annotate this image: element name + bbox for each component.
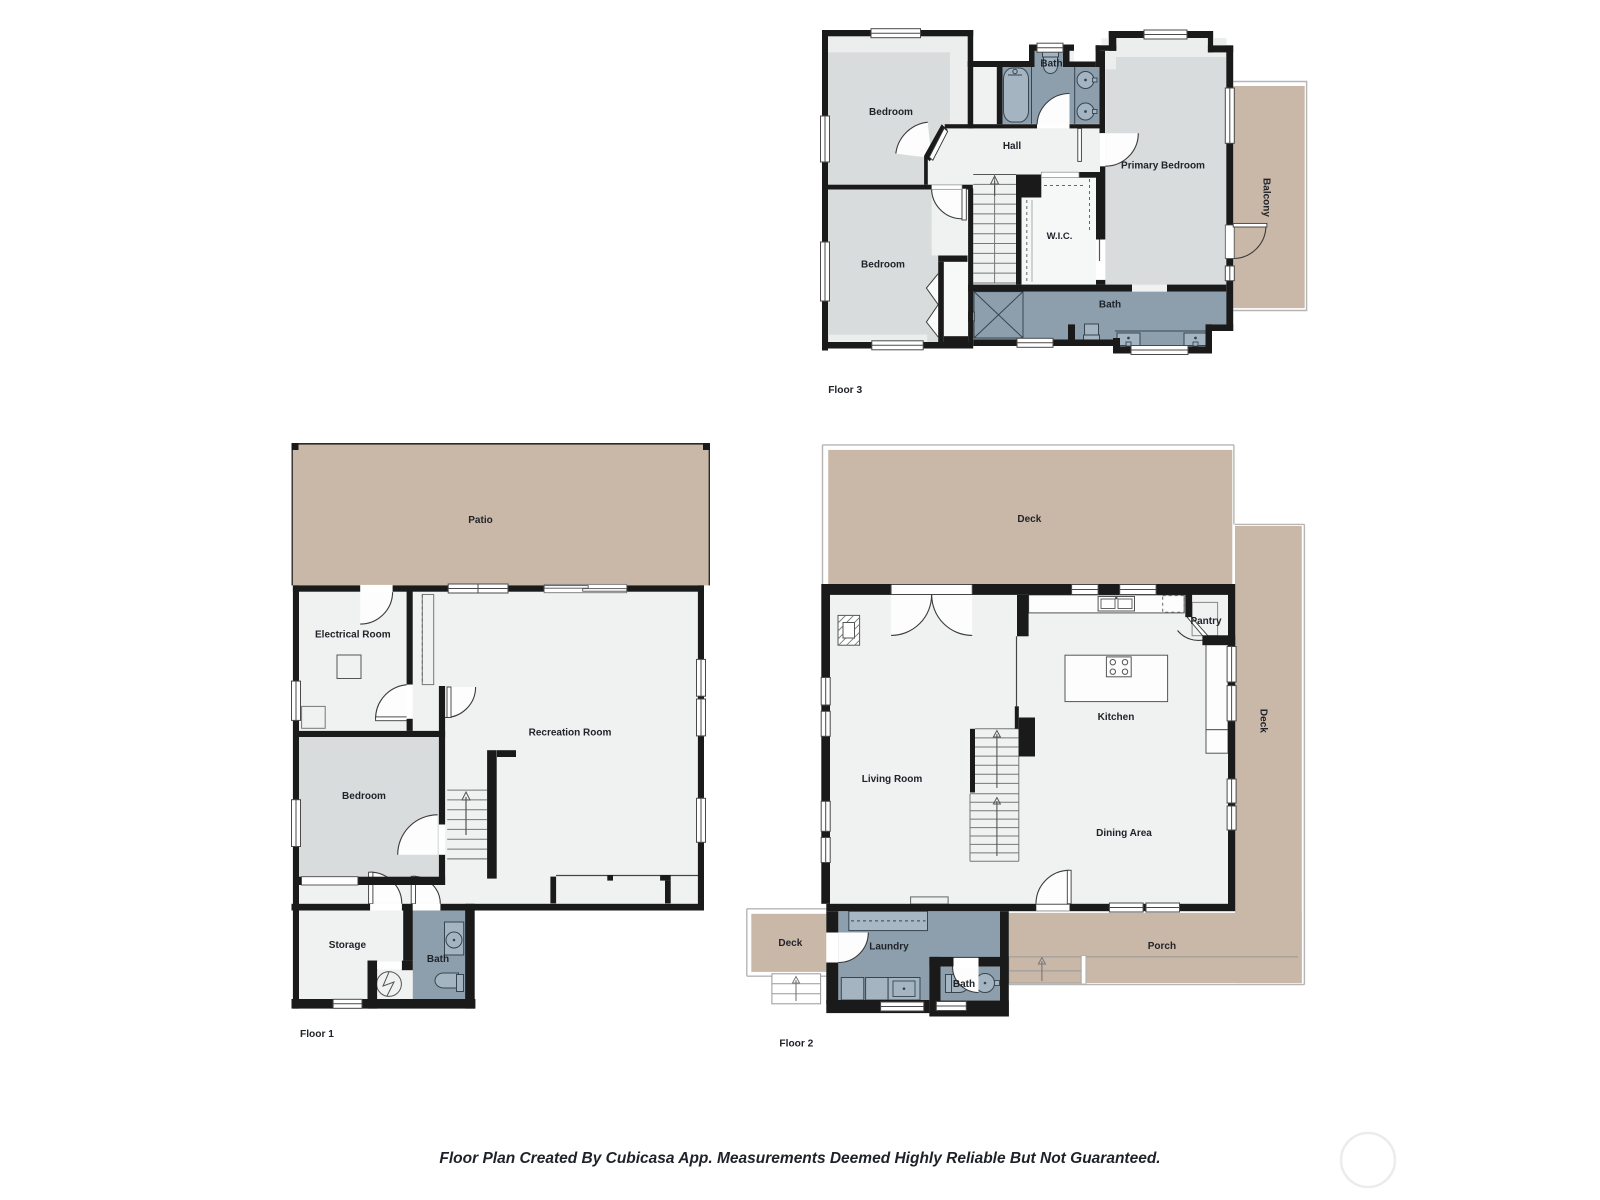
svg-text:Porch: Porch (1148, 941, 1176, 952)
svg-text:Floor 1: Floor 1 (300, 1029, 334, 1040)
svg-text:Bath: Bath (427, 954, 449, 965)
svg-text:Dining Area: Dining Area (1096, 828, 1152, 839)
svg-text:Primary Bedroom: Primary Bedroom (1121, 161, 1205, 172)
svg-text:Floor Plan Created By Cubicasa: Floor Plan Created By Cubicasa App. Meas… (439, 1150, 1160, 1167)
svg-text:Laundry: Laundry (869, 942, 909, 953)
svg-text:Bedroom: Bedroom (869, 107, 913, 118)
svg-text:Floor 3: Floor 3 (828, 385, 862, 396)
svg-text:Pantry: Pantry (1190, 616, 1222, 627)
svg-text:Recreation Room: Recreation Room (529, 728, 612, 739)
svg-text:Balcony: Balcony (1261, 178, 1272, 217)
svg-text:Patio: Patio (468, 515, 492, 526)
svg-text:Deck: Deck (1258, 709, 1269, 733)
svg-text:Bath: Bath (1099, 300, 1121, 311)
svg-text:Hall: Hall (1003, 141, 1022, 152)
svg-text:W.I.C.: W.I.C. (1047, 231, 1073, 242)
svg-text:Bedroom: Bedroom (861, 260, 905, 271)
svg-text:Bedroom: Bedroom (342, 791, 386, 802)
svg-text:Deck: Deck (1017, 514, 1041, 525)
svg-text:Electrical Room: Electrical Room (315, 630, 391, 641)
svg-text:Living Room: Living Room (862, 774, 923, 785)
svg-text:Storage: Storage (329, 940, 367, 951)
svg-text:Kitchen: Kitchen (1098, 712, 1135, 723)
svg-text:Bath: Bath (953, 979, 975, 990)
svg-text:Floor 2: Floor 2 (779, 1039, 813, 1050)
svg-text:Bath: Bath (1040, 59, 1062, 70)
svg-text:Deck: Deck (778, 938, 802, 949)
